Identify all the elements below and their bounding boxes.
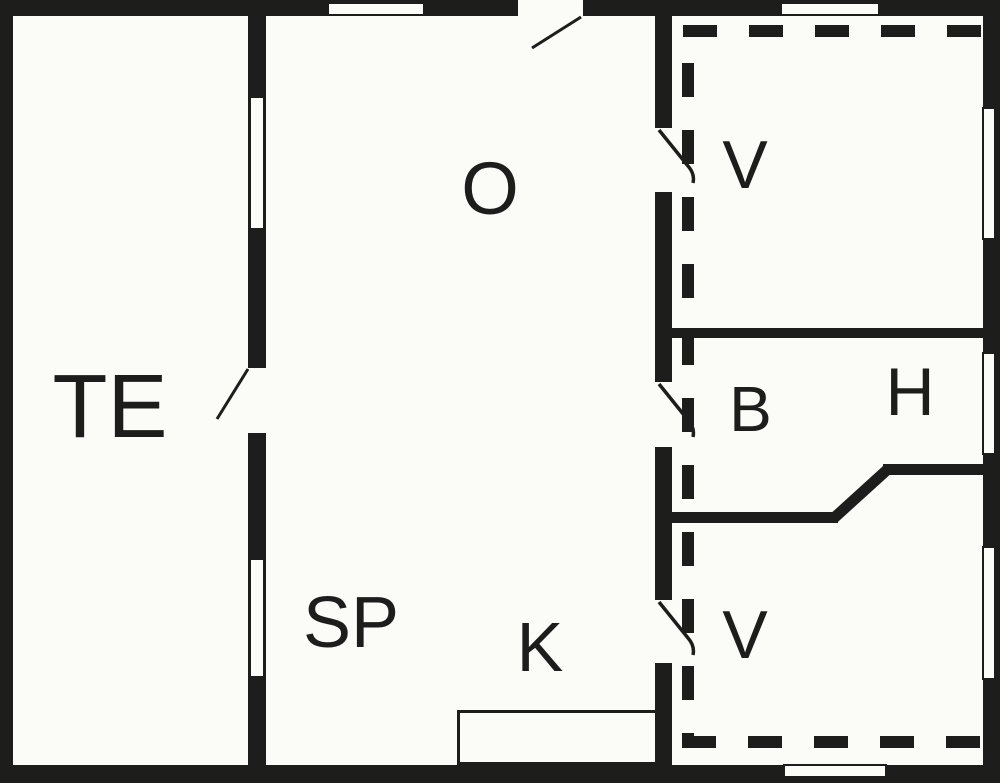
room-label-o: O	[440, 152, 540, 226]
door-opening-v-top	[655, 128, 672, 192]
window-right-wall-v-top	[982, 107, 996, 240]
door-opening-top-entrance	[518, 0, 583, 16]
window-top-wall-o	[327, 2, 425, 16]
dashed-boundary-top	[683, 25, 983, 37]
window-right-wall-v-bottom	[982, 546, 996, 680]
partition-wall-b-v-diagonal	[834, 469, 888, 518]
dashed-boundary-left	[682, 63, 694, 748]
door-swing-line-te	[217, 369, 248, 419]
door-opening-b	[655, 382, 672, 447]
room-label-h: H	[875, 358, 945, 426]
window-right-wall-h	[982, 352, 996, 455]
door-opening-te	[248, 368, 266, 433]
room-label-sp: SP	[291, 587, 411, 659]
room-label-v-bottom: V	[710, 601, 780, 669]
kitchen-counter	[457, 710, 662, 765]
room-label-k: K	[500, 612, 580, 682]
window-bottom-wall-v	[783, 764, 887, 778]
window-top-wall-v	[780, 2, 880, 16]
door-opening-v-bottom	[655, 600, 672, 663]
window-te-wall-lower	[249, 558, 265, 678]
exterior-wall-left	[0, 0, 13, 783]
partition-wall-b-v-right	[883, 464, 1000, 475]
door-swing-line-top-entrance	[532, 17, 581, 48]
floor-plan: TE O SP K V B H V	[0, 0, 1000, 783]
room-label-te: TE	[40, 362, 180, 452]
room-label-v-top: V	[710, 131, 780, 199]
partition-wall-v-b	[655, 328, 1000, 338]
room-label-b: B	[718, 377, 783, 441]
window-te-wall-upper	[249, 96, 265, 230]
dashed-boundary-bottom	[682, 736, 983, 748]
